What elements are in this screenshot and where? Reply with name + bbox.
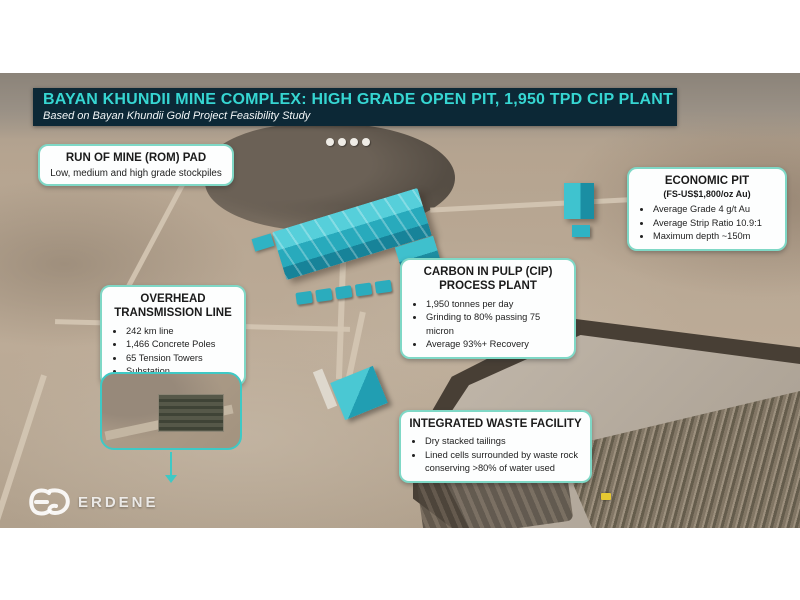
cip-plant-title: CARBON IN PULP (CIP) PROCESS PLANT xyxy=(410,265,566,294)
bullet-item: Maximum depth ~150m xyxy=(652,230,777,243)
waste-facility-title: INTEGRATED WASTE FACILITY xyxy=(409,417,582,431)
cip-tank xyxy=(335,285,353,299)
cip-tank xyxy=(375,280,393,294)
erdene-logo-text: ERDENE xyxy=(78,494,159,511)
slide-title: BAYAN KHUNDII MINE COMPLEX: HIGH GRADE O… xyxy=(43,91,667,109)
cip-tank xyxy=(355,282,373,296)
tank xyxy=(350,138,358,146)
cip-tank xyxy=(315,288,333,302)
title-banner: BAYAN KHUNDII MINE COMPLEX: HIGH GRADE O… xyxy=(33,88,677,126)
rom-pad-description: Low, medium and high grade stockpiles xyxy=(48,168,224,179)
storage-tanks xyxy=(326,133,374,151)
bullet-item: Average Grade 4 g/t Au xyxy=(652,203,777,216)
economic-pit-title: ECONOMIC PIT xyxy=(637,174,777,188)
road xyxy=(336,261,346,379)
pit-area-building xyxy=(564,183,594,219)
bullet-item: 1,466 Concrete Poles xyxy=(125,338,236,351)
callout-rom-pad: RUN OF MINE (ROM) PAD Low, medium and hi… xyxy=(38,144,234,186)
cip-tank xyxy=(295,291,313,305)
callout-transmission-line: OVERHEAD TRANSMISSION LINE 242 km line 1… xyxy=(100,285,246,386)
bullet-item: Lined cells surrounded by waste rock con… xyxy=(424,449,582,476)
slide-subtitle: Based on Bayan Khundii Gold Project Feas… xyxy=(43,110,667,122)
substation-compound xyxy=(158,394,224,432)
bullet-item: 242 km line xyxy=(125,325,236,338)
inset-pointer-arrowhead-icon xyxy=(165,475,177,483)
tank xyxy=(362,138,370,146)
bullet-item: Average 93%+ Recovery xyxy=(425,338,566,351)
erdene-logo-mark-icon xyxy=(28,486,72,518)
bullet-item: 65 Tension Towers xyxy=(125,352,236,365)
economic-pit-subtitle: (FS-US$1,800/oz Au) xyxy=(637,189,777,199)
presentation-slide: BAYAN KHUNDII MINE COMPLEX: HIGH GRADE O… xyxy=(0,0,800,600)
transmission-line-title: OVERHEAD TRANSMISSION LINE xyxy=(110,292,236,321)
bullet-item: Average Strip Ratio 10.9:1 xyxy=(652,217,777,230)
callout-cip-plant: CARBON IN PULP (CIP) PROCESS PLANT 1,950… xyxy=(400,258,576,359)
cip-plant-bullets: 1,950 tonnes per day Grinding to 80% pas… xyxy=(410,298,566,352)
small-plant-building xyxy=(252,233,275,251)
tank xyxy=(338,138,346,146)
haul-truck xyxy=(601,493,611,500)
transmission-line-bullets: 242 km line 1,466 Concrete Poles 65 Tens… xyxy=(110,325,236,379)
bullet-item: Dry stacked tailings xyxy=(424,435,582,448)
tank xyxy=(326,138,334,146)
bullet-item: Grinding to 80% passing 75 micron xyxy=(425,311,566,338)
cip-tank-row xyxy=(295,278,397,310)
economic-pit-bullets: Average Grade 4 g/t Au Average Strip Rat… xyxy=(637,203,777,243)
inset-pointer-line xyxy=(170,452,172,476)
pit-area-building-small xyxy=(572,225,590,237)
erdene-logo: ERDENE xyxy=(28,486,159,518)
bullet-item: 1,950 tonnes per day xyxy=(425,298,566,311)
callout-economic-pit: ECONOMIC PIT (FS-US$1,800/oz Au) Average… xyxy=(627,167,787,251)
callout-waste-facility: INTEGRATED WASTE FACILITY Dry stacked ta… xyxy=(399,410,592,483)
waste-facility-bullets: Dry stacked tailings Lined cells surroun… xyxy=(409,435,582,475)
substation-inset-highlight xyxy=(100,372,242,450)
rom-pad-title: RUN OF MINE (ROM) PAD xyxy=(48,151,224,165)
